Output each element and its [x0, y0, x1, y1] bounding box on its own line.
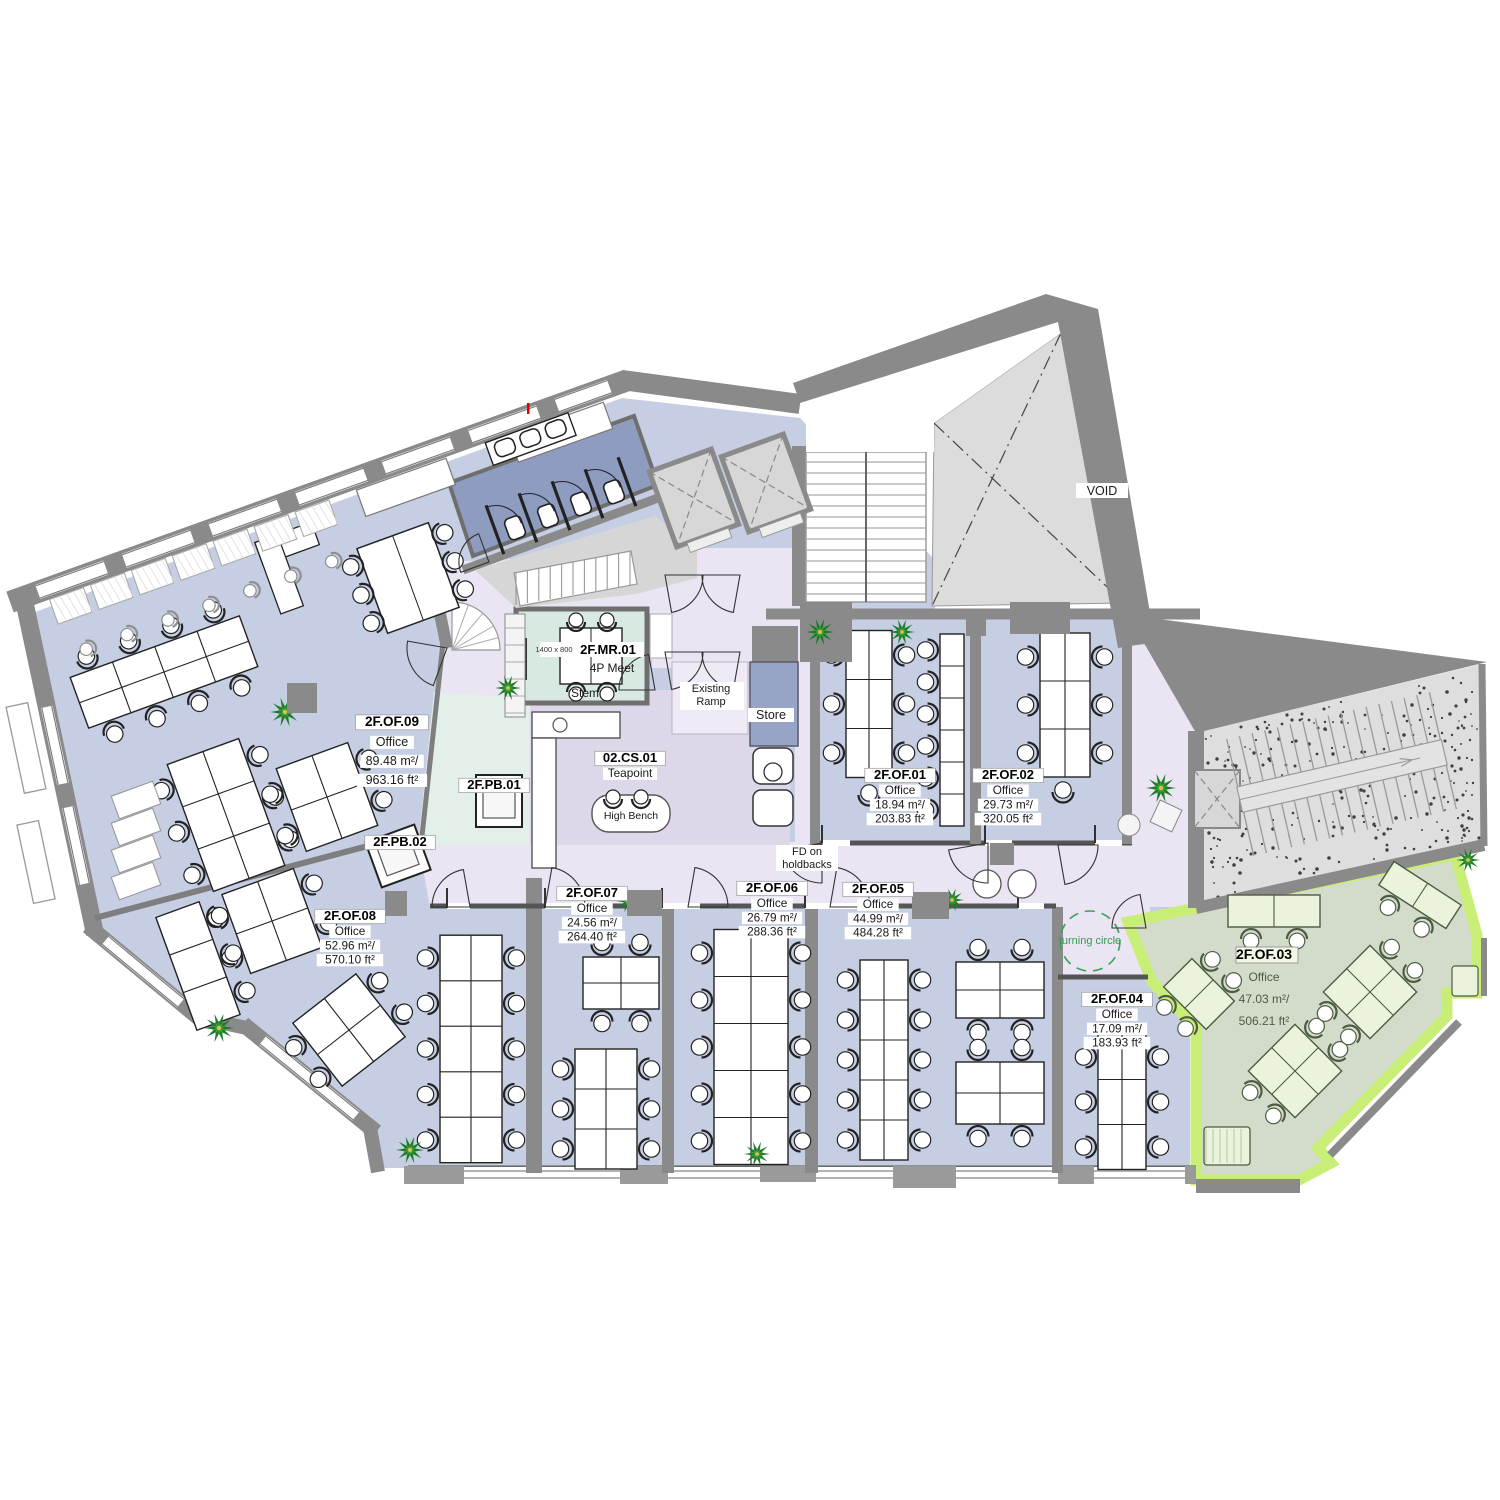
svg-text:2F.OF.06: 2F.OF.06 [746, 880, 798, 895]
svg-text:44.99 m²/: 44.99 m²/ [853, 911, 904, 925]
svg-text:2F.OF.05: 2F.OF.05 [852, 881, 904, 896]
svg-text:High Bench: High Bench [604, 810, 658, 822]
svg-text:02.CS.01: 02.CS.01 [603, 750, 657, 765]
svg-text:turning circle: turning circle [1059, 935, 1121, 947]
svg-text:963.16 ft²: 963.16 ft² [366, 773, 419, 787]
svg-text:VOID: VOID [1087, 484, 1118, 498]
svg-text:Office: Office [376, 735, 408, 749]
svg-text:288.36 ft²: 288.36 ft² [747, 925, 797, 939]
svg-text:Existing: Existing [692, 683, 731, 695]
svg-text:Office: Office [335, 924, 366, 938]
svg-text:203.83 ft²: 203.83 ft² [875, 812, 925, 826]
svg-text:17.09 m²/: 17.09 m²/ [1092, 1021, 1143, 1035]
svg-text:2F.OF.08: 2F.OF.08 [324, 908, 376, 923]
svg-text:2F.OF.03: 2F.OF.03 [1236, 946, 1292, 962]
svg-text:89.48 m²/: 89.48 m²/ [366, 754, 419, 768]
svg-text:Stem: Stem [571, 686, 599, 700]
svg-text:holdbacks: holdbacks [782, 859, 832, 871]
svg-text:Office: Office [577, 901, 608, 915]
svg-text:2F.OF.04: 2F.OF.04 [1091, 991, 1144, 1006]
svg-text:484.28 ft²: 484.28 ft² [853, 926, 903, 940]
svg-text:183.93 ft²: 183.93 ft² [1092, 1036, 1142, 1050]
svg-text:Office: Office [863, 897, 894, 911]
svg-text:570.10 ft²: 570.10 ft² [325, 953, 375, 967]
svg-text:Ramp: Ramp [696, 696, 725, 708]
svg-text:Office: Office [885, 783, 916, 797]
svg-text:2F.OF.07: 2F.OF.07 [566, 885, 618, 900]
svg-text:Office: Office [993, 783, 1024, 797]
svg-text:2F.OF.02: 2F.OF.02 [982, 767, 1034, 782]
svg-text:320.05 ft²: 320.05 ft² [983, 812, 1033, 826]
svg-text:2F.OF.09: 2F.OF.09 [365, 714, 419, 729]
svg-text:1400 x 800: 1400 x 800 [535, 645, 572, 654]
svg-text:29.73 m²/: 29.73 m²/ [983, 797, 1034, 811]
svg-text:52.96 m²/: 52.96 m²/ [325, 938, 376, 952]
svg-text:2F.PB.01: 2F.PB.01 [467, 777, 520, 792]
svg-text:2F.OF.01: 2F.OF.01 [874, 767, 926, 782]
svg-text:18.94 m²/: 18.94 m²/ [875, 797, 926, 811]
svg-text:Office: Office [1102, 1007, 1133, 1021]
svg-text:2F.PB.02: 2F.PB.02 [373, 834, 426, 849]
svg-text:4P Meet: 4P Meet [590, 661, 635, 675]
svg-text:Office: Office [1248, 970, 1279, 984]
svg-text:Store: Store [756, 708, 786, 722]
svg-text:264.40 ft²: 264.40 ft² [567, 930, 617, 944]
svg-text:506.21 ft²: 506.21 ft² [1239, 1014, 1290, 1028]
svg-text:26.79 m²/: 26.79 m²/ [747, 910, 798, 924]
svg-text:Office: Office [757, 896, 788, 910]
svg-text:FD on: FD on [792, 846, 822, 858]
svg-text:Teapoint: Teapoint [608, 766, 653, 780]
svg-text:47.03 m²/: 47.03 m²/ [1239, 992, 1290, 1006]
svg-text:2F.MR.01: 2F.MR.01 [580, 642, 636, 657]
svg-text:24.56 m²/: 24.56 m²/ [567, 915, 618, 929]
